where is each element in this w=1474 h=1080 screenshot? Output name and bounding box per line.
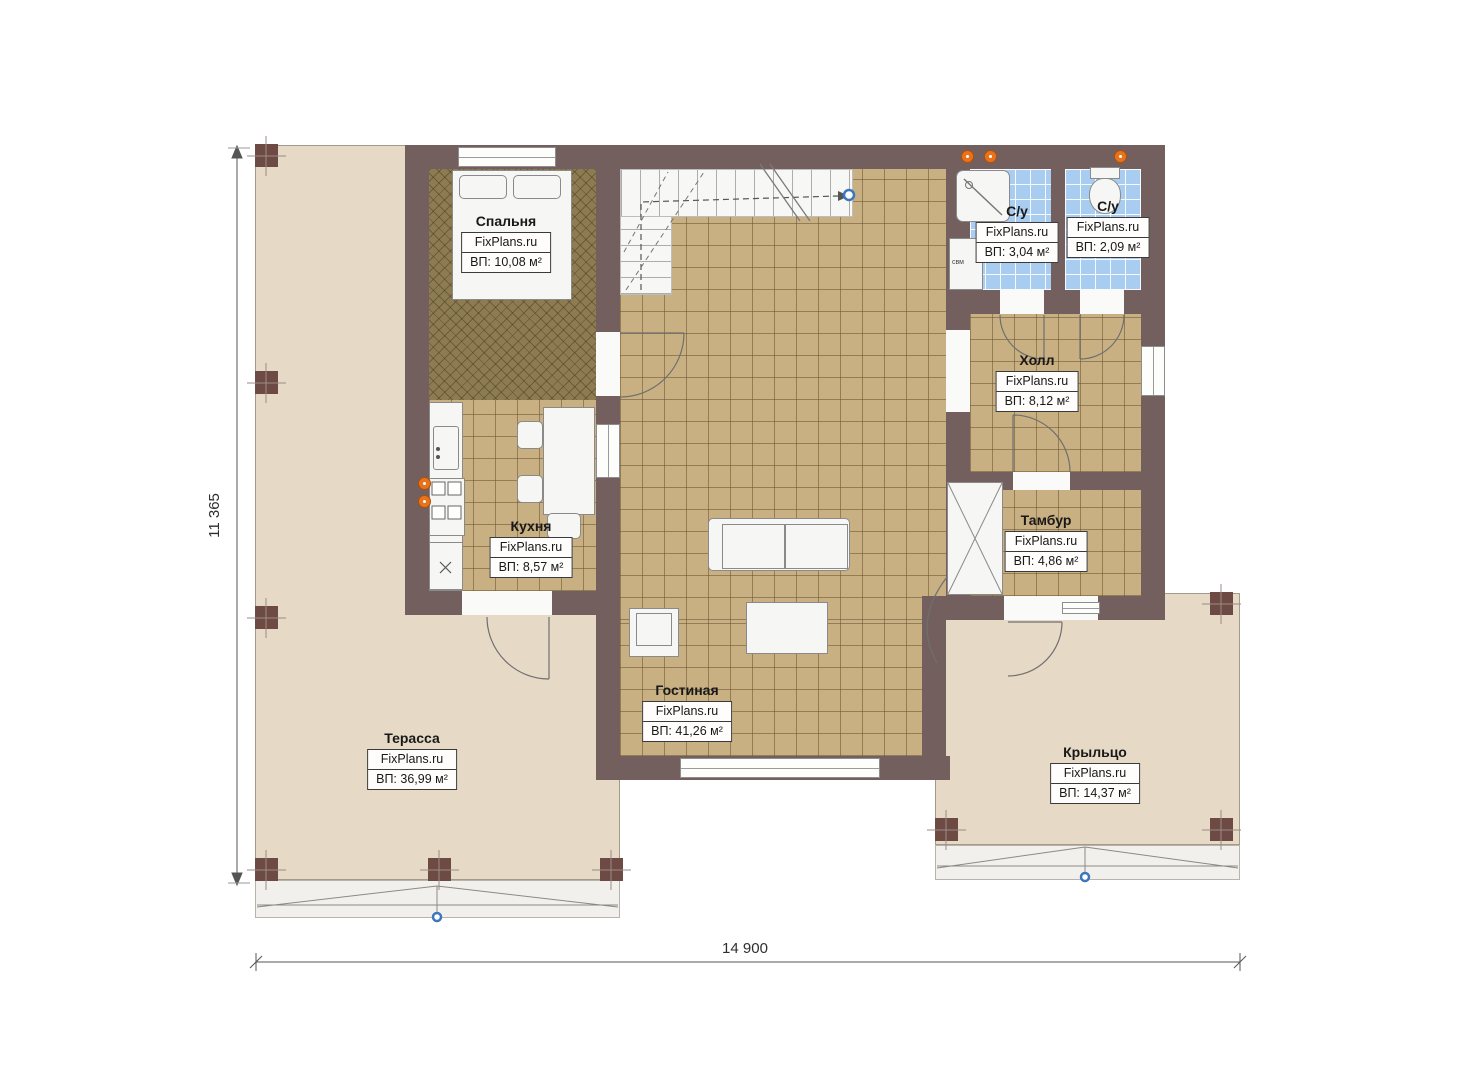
wall-living-east-lower — [922, 596, 946, 780]
pillow — [513, 175, 561, 199]
room-name: Кухня — [490, 518, 573, 534]
kitchen-table — [543, 407, 595, 515]
room-area: ВП: 41,26 м² — [643, 721, 731, 741]
porch-post — [935, 818, 958, 841]
room-area: ВП: 14,37 м² — [1051, 783, 1139, 803]
brand-link: FixPlans.ru — [1051, 764, 1139, 783]
window-hall-right — [1141, 346, 1165, 396]
plumbing-fixture-icon — [961, 150, 974, 163]
room-label-porch: Крыльцо FixPlans.ru ВП: 14,37 м² — [1050, 744, 1140, 804]
dimension-width: 14 900 — [722, 940, 768, 957]
room-label-bath2: С/у FixPlans.ru ВП: 2,09 м² — [1067, 198, 1150, 258]
room-label-living: Гостиная FixPlans.ru ВП: 41,26 м² — [642, 682, 732, 742]
coffee-table — [746, 602, 828, 654]
room-area: ВП: 8,12 м² — [997, 391, 1078, 411]
washer-note: свм — [952, 259, 964, 266]
room-label-terrace: Терасса FixPlans.ru ВП: 36,99 м² — [367, 730, 457, 790]
terrace-post — [255, 144, 278, 167]
terrace-post — [255, 858, 278, 881]
door-opening-hall-tambour — [1013, 472, 1070, 490]
window-kitchen-mid — [596, 424, 620, 478]
brand-link: FixPlans.ru — [643, 702, 731, 721]
room-area: ВП: 10,08 м² — [462, 252, 550, 272]
pillow — [459, 175, 507, 199]
stairs-lower-run — [620, 216, 672, 295]
terrace-post — [255, 606, 278, 629]
room-area: ВП: 8,57 м² — [491, 557, 572, 577]
room-label-kitchen: Кухня FixPlans.ru ВП: 8,57 м² — [490, 518, 573, 578]
room-label-hall: Холл FixPlans.ru ВП: 8,12 м² — [996, 352, 1079, 412]
opening-living-hall — [946, 330, 970, 412]
room-name: Тамбур — [1005, 512, 1088, 528]
door-opening-bath1 — [1000, 290, 1044, 314]
dimension-height: 11 365 — [206, 493, 223, 538]
kitchen-stove — [429, 478, 465, 536]
terrace-post — [600, 858, 623, 881]
room-name: С/у — [976, 203, 1059, 219]
brand-link: FixPlans.ru — [977, 223, 1058, 242]
room-name: Холл — [996, 352, 1079, 368]
door-opening-kitchen-terrace — [462, 591, 552, 615]
kitchen-chair — [517, 421, 543, 449]
room-label-tambour: Тамбур FixPlans.ru ВП: 4,86 м² — [1005, 512, 1088, 572]
kitchen-cabinet — [429, 542, 463, 590]
sofa-cushion — [785, 524, 848, 569]
stairs-upper-run — [620, 169, 853, 217]
sidelight-tambour-door — [1062, 602, 1100, 614]
door-opening-bedroom — [596, 332, 620, 396]
terrace-post — [255, 371, 278, 394]
porch-post — [1210, 592, 1233, 615]
kitchen-sink — [433, 426, 459, 470]
wall-left — [405, 145, 429, 615]
room-area: ВП: 4,86 м² — [1006, 551, 1087, 571]
wardrobe — [947, 482, 1003, 595]
room-area: ВП: 36,99 м² — [368, 769, 456, 789]
wall-below-baths — [946, 290, 1165, 314]
window-bedroom-top — [458, 147, 556, 167]
brand-link: FixPlans.ru — [491, 538, 572, 557]
door-opening-bath2 — [1080, 290, 1124, 314]
porch-post — [1210, 818, 1233, 841]
room-label-bath1: С/у FixPlans.ru ВП: 3,04 м² — [976, 203, 1059, 263]
plumbing-fixture-icon — [418, 477, 431, 490]
window-living-bottom — [680, 758, 880, 778]
plumbing-fixture-icon — [984, 150, 997, 163]
room-name: Терасса — [367, 730, 457, 746]
armchair-seat — [636, 613, 672, 646]
room-name: С/у — [1067, 198, 1150, 214]
room-name: Спальня — [461, 213, 551, 229]
room-area: ВП: 2,09 м² — [1068, 237, 1149, 257]
brand-link: FixPlans.ru — [997, 372, 1078, 391]
brand-link: FixPlans.ru — [1006, 532, 1087, 551]
kitchen-chair — [517, 475, 543, 503]
floor-plan-canvas: Спальня FixPlans.ru ВП: 10,08 м² С/у Fix… — [0, 0, 1474, 1080]
room-area: ВП: 3,04 м² — [977, 242, 1058, 262]
porch-deck — [935, 593, 1240, 845]
brand-link: FixPlans.ru — [1068, 218, 1149, 237]
room-label-bedroom: Спальня FixPlans.ru ВП: 10,08 м² — [461, 213, 551, 273]
brand-link: FixPlans.ru — [368, 750, 456, 769]
room-name: Крыльцо — [1050, 744, 1140, 760]
porch-steps — [935, 845, 1240, 880]
brand-link: FixPlans.ru — [462, 233, 550, 252]
sofa-cushion — [722, 524, 785, 569]
plumbing-fixture-icon — [418, 495, 431, 508]
terrace-steps — [255, 880, 620, 918]
terrace-post — [428, 858, 451, 881]
plumbing-fixture-icon — [1114, 150, 1127, 163]
room-name: Гостиная — [642, 682, 732, 698]
